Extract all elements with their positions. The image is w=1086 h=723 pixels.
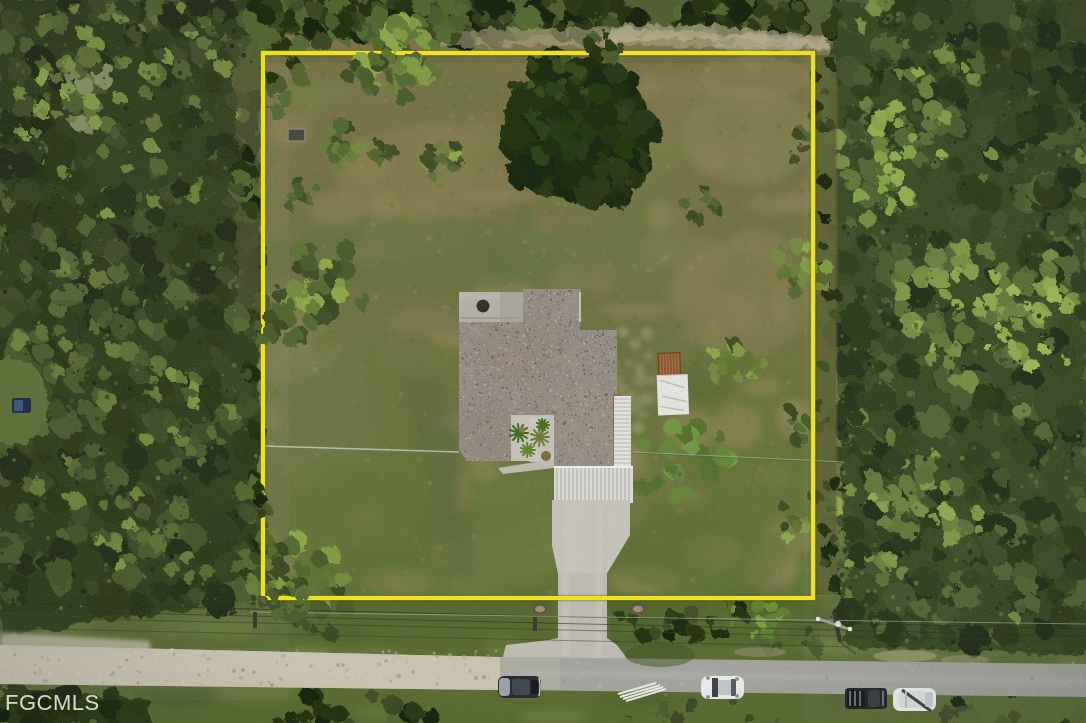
svg-text:FGCMLS: FGCMLS — [5, 690, 100, 715]
